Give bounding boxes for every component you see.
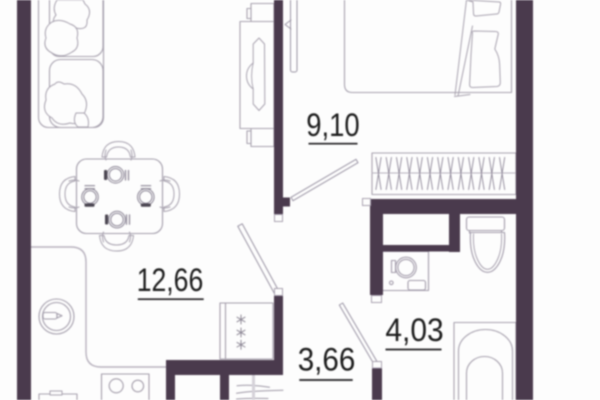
svg-text:4,03: 4,03	[385, 312, 443, 348]
svg-text:12,66: 12,66	[137, 263, 204, 299]
svg-text:9,10: 9,10	[306, 108, 359, 143]
svg-text:3,66: 3,66	[298, 342, 356, 378]
